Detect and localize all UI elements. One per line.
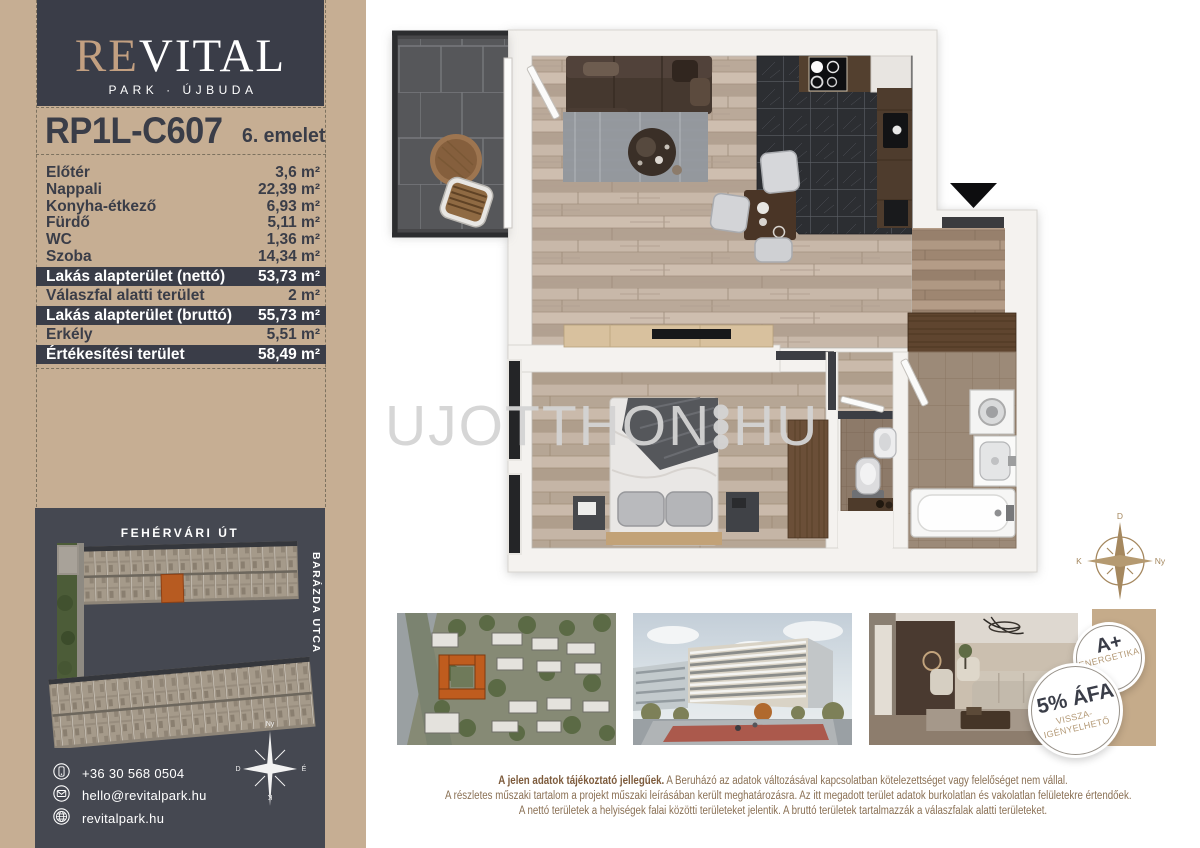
svg-text:UJOTTHON: UJOTTHON: [385, 394, 711, 458]
svg-text:Ny: Ny: [266, 721, 275, 728]
svg-text:É: É: [302, 764, 307, 773]
svg-text:D: D: [235, 766, 240, 773]
svg-text:K: K: [267, 793, 272, 800]
svg-text:K: K: [1076, 556, 1082, 566]
svg-text:Ny: Ny: [1155, 556, 1166, 566]
svg-text:D: D: [1117, 511, 1123, 521]
svg-text:HU: HU: [733, 394, 819, 458]
